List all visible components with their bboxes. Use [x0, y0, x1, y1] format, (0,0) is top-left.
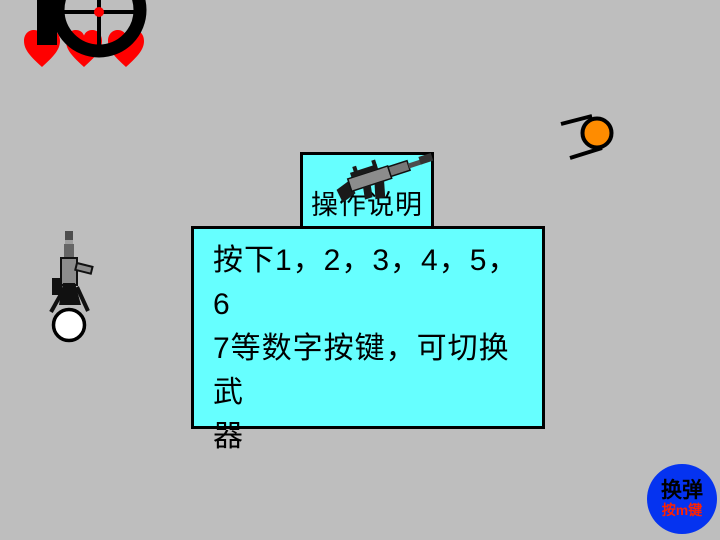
help-line: 按下1，2，3，4，5，6 — [213, 239, 526, 327]
reload-button[interactable]: 换弹 按m键 — [647, 464, 717, 534]
sniper-scope-icon — [30, 0, 170, 70]
player-rifle-icon — [52, 231, 93, 305]
player-head — [54, 310, 85, 341]
reload-button-hotkey: 按m键 — [662, 502, 702, 519]
player-character — [40, 225, 110, 350]
help-line: 器 — [213, 415, 526, 459]
help-body-text: 按下1，2，3，4，5，6 7等数字按键，可切换武 器 — [194, 229, 542, 459]
enemy-target[interactable] — [550, 100, 630, 170]
help-body-panel: 按下1，2，3，4，5，6 7等数字按键，可切换武 器 — [191, 226, 545, 429]
assault-rifle-icon — [333, 147, 439, 203]
scope-center-dot — [94, 7, 104, 17]
game-screen[interactable]: 操作说明 按下1，2，3，4，5，6 7等数字按键，可切换武 器 换弹 按m键 — [0, 0, 720, 540]
reload-button-label: 换弹 — [661, 479, 703, 502]
help-line: 7等数字按键，可切换武 — [213, 327, 526, 415]
